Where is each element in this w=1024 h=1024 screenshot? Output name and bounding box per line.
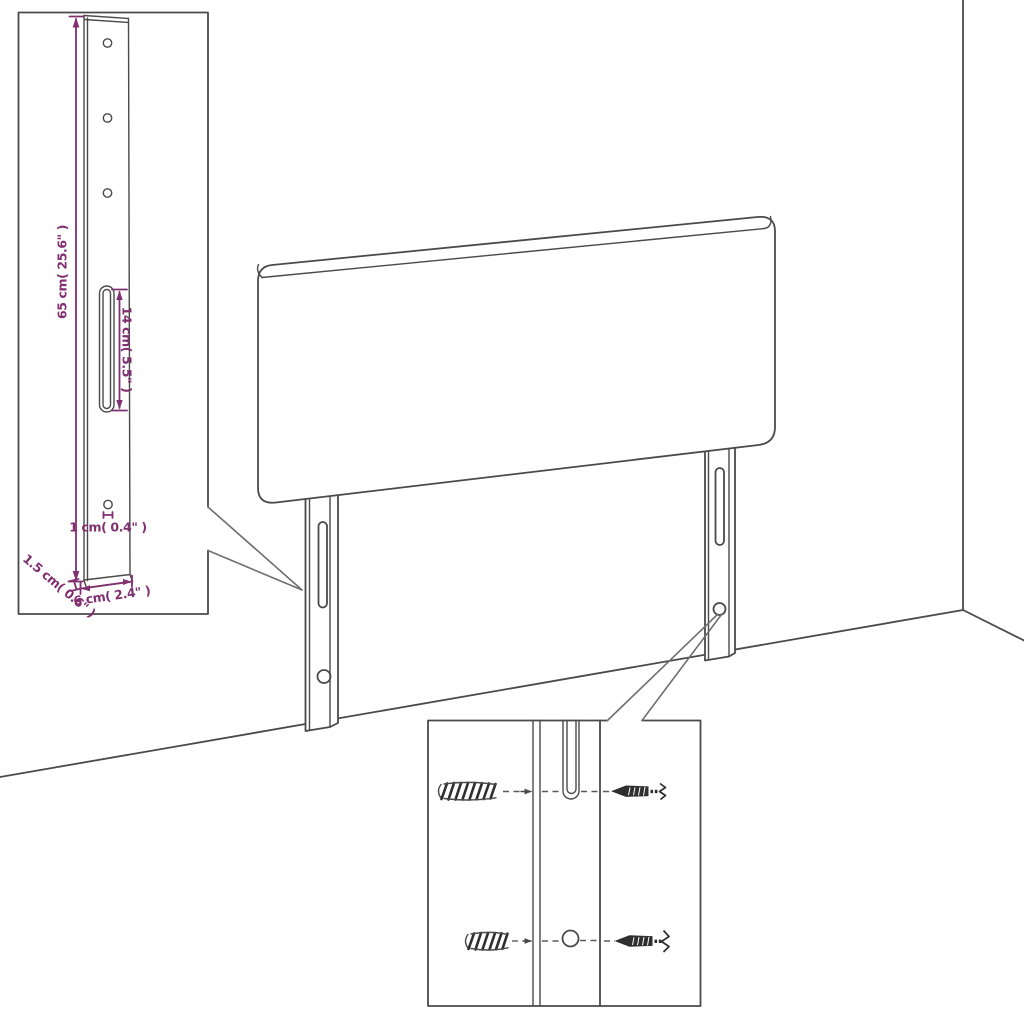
hardware-inset (428, 721, 701, 1007)
panel-outline (258, 217, 775, 503)
leg-detail-inset: 65 cm( 25.6" ) 14 cm( 5.5" ) 1 cm( 0.4" … (19, 13, 209, 621)
callout-right-line-left (608, 615, 718, 721)
height-dimension-label: 65 cm( 25.6" ) (55, 225, 70, 319)
left-leg-slot (319, 522, 328, 608)
headboard-right-leg (705, 441, 735, 661)
hole-dimension-label: 1 cm( 0.4" ) (69, 520, 146, 535)
headboard-diagram: 65 cm( 25.6" ) 14 cm( 5.5" ) 1 cm( 0.4" … (0, 0, 1024, 1024)
floor-line-right (963, 610, 1024, 641)
callout-left (208, 507, 302, 590)
slot-dimension-label: 14 cm( 5.5" ) (120, 307, 135, 393)
callout-right-line-right (642, 615, 722, 721)
right-leg-slot (716, 468, 725, 545)
hardware-inset-border (428, 721, 701, 1007)
callout-left-line-lower (208, 551, 302, 591)
headboard-panel (258, 217, 775, 503)
callout-left-line-upper (208, 507, 302, 590)
diagram-canvas: 65 cm( 25.6" ) 14 cm( 5.5" ) 1 cm( 0.4" … (0, 0, 1024, 1024)
headboard-left-leg (306, 488, 339, 731)
